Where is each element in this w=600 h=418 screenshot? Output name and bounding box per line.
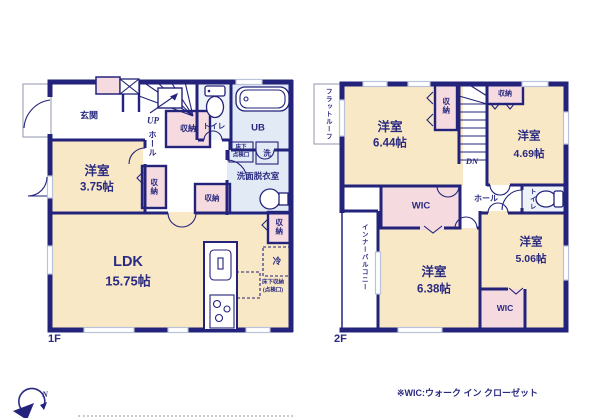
- label-storage-stairs: 収納: [180, 125, 196, 133]
- label-floor-storage-2: (点検口): [263, 288, 283, 294]
- label-toilet-2f: トイレ: [528, 188, 535, 211]
- label-room3-2f-size: 6.38帖: [417, 284, 451, 296]
- label-storage-469: 収納: [498, 91, 512, 98]
- label-room1-2f-size: 6.44帖: [373, 138, 407, 150]
- label-room3-2f: 洋室: [421, 266, 446, 279]
- label-fridge: 冷: [273, 257, 282, 266]
- wic-footnote: ※WIC:ウォーク イン クローゼット: [397, 389, 538, 398]
- label-storage-ldk: 収納: [275, 219, 283, 236]
- kitchen-counter: [204, 242, 237, 330]
- label-hall-2f: ホール: [474, 195, 498, 203]
- label-storage-yoshitsu: 収納: [150, 179, 158, 196]
- compass-north-label: N: [42, 391, 48, 399]
- label-inner-balcony: インナーバルコニー: [360, 223, 367, 291]
- label-room-1f: 洋室: [84, 165, 109, 178]
- label-room4-2f-size: 5.06帖: [516, 254, 547, 265]
- label-laundry: 洗: [263, 149, 271, 157]
- label-storage-644: 収納: [442, 98, 450, 115]
- floor1-label: 1F: [48, 334, 61, 345]
- shoe-cabinet: [96, 77, 120, 94]
- label-hatch-top: 床下: [235, 145, 246, 151]
- room-fill-638: [378, 228, 480, 330]
- cross-box: [120, 79, 139, 94]
- label-room1-2f: 洋室: [377, 121, 402, 134]
- staircase-2f: [459, 84, 487, 160]
- label-ldk: LDK: [113, 255, 143, 270]
- wic-door-gap: [420, 226, 444, 231]
- floorplan-canvas: 1F 玄関 UP ホール 収納 トイレ UB 洗面脱衣室 洗 床下 点検口 洋室…: [0, 0, 600, 418]
- floorplan-drawing: [0, 0, 600, 418]
- room-fill-ldk: [50, 212, 291, 330]
- label-washroom: 洗面脱衣室: [237, 172, 280, 181]
- label-toilet-1f: トイレ: [203, 122, 226, 130]
- cutoff-text-remnant: [78, 415, 293, 417]
- bathtub-icon: [236, 87, 289, 111]
- label-room2-2f: 洋室: [518, 131, 541, 143]
- label-hatch-bottom: 点検口: [233, 153, 250, 159]
- label-hall-1f: ホール: [148, 131, 156, 158]
- label-room2-2f-size: 4.69帖: [514, 149, 545, 160]
- label-room4-2f: 洋室: [520, 237, 543, 249]
- label-floor-storage-1: 床下収納: [262, 280, 284, 286]
- label-up: UP: [147, 117, 159, 126]
- label-room-1f-size: 3.75帖: [80, 182, 114, 194]
- label-wic-top: WIC: [412, 201, 430, 211]
- toilet-icon-2f: [536, 191, 563, 207]
- label-bath: UB: [251, 123, 265, 133]
- floor2-label: 2F: [334, 334, 347, 345]
- label-entrance: 玄関: [80, 112, 98, 121]
- label-wic-bottom: WIC: [497, 304, 514, 313]
- label-dn: DN: [466, 157, 478, 166]
- label-flat-roof: フラットルーフ: [324, 88, 331, 141]
- label-ldk-size: 15.75帖: [105, 275, 151, 288]
- label-storage-hall: 収納: [205, 194, 220, 202]
- door-gap-yoshitsu-1f: [143, 148, 147, 164]
- porch: [23, 84, 51, 137]
- toilet-icon-1f: [205, 86, 225, 118]
